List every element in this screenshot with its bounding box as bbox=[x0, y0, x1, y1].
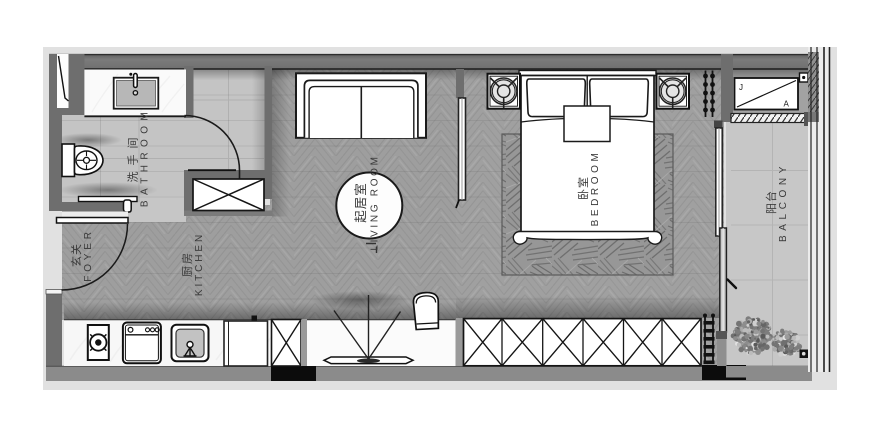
svg-text:卧室: 卧室 bbox=[576, 176, 590, 200]
svg-text:J: J bbox=[739, 83, 743, 92]
svg-text:起居室: 起居室 bbox=[353, 182, 368, 223]
svg-text:BATHROOM: BATHROOM bbox=[140, 107, 151, 207]
svg-text:BEDROOM: BEDROOM bbox=[590, 150, 601, 227]
svg-text:厨房: 厨房 bbox=[181, 251, 194, 277]
svg-text:洗手间: 洗手间 bbox=[126, 132, 140, 183]
svg-text:A: A bbox=[784, 100, 790, 109]
svg-text:玄关: 玄关 bbox=[69, 243, 83, 267]
svg-text:KITCHEN: KITCHEN bbox=[194, 232, 205, 296]
svg-text:阳台: 阳台 bbox=[764, 190, 778, 214]
svg-text:FOYER: FOYER bbox=[83, 228, 94, 281]
svg-text:LIVING ROOM: LIVING ROOM bbox=[370, 154, 381, 250]
svg-text:BALCONY: BALCONY bbox=[778, 162, 789, 242]
